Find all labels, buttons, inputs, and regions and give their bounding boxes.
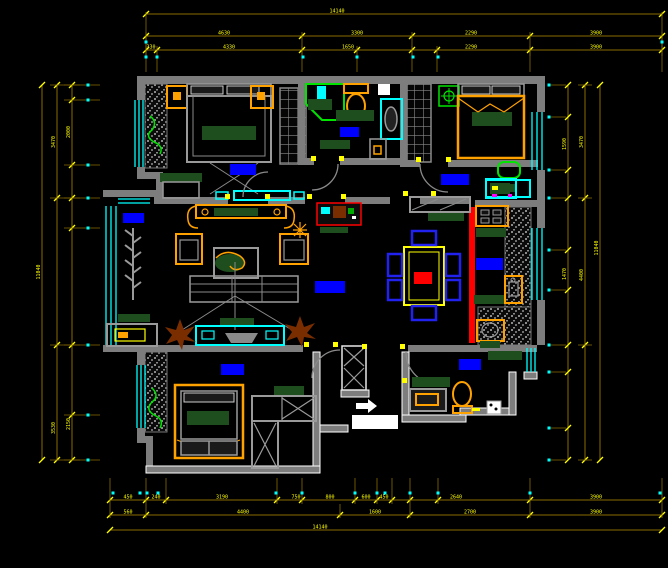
dining-table-center: [414, 272, 432, 284]
axis-dot: [87, 414, 90, 417]
drawing-layer: 1414046303300229039003304330165022903900…: [36, 9, 665, 534]
nightstand-lamp: [257, 92, 265, 100]
door-hinge: [265, 194, 270, 199]
sideboard-green: [428, 213, 464, 221]
wall: [146, 466, 320, 473]
bed2-pillow: [492, 86, 520, 94]
axis-dot: [302, 56, 305, 59]
axis-dot: [548, 116, 551, 119]
dining-chair: [388, 254, 402, 276]
window-bedroom1-left: [135, 100, 143, 167]
wall: [448, 160, 538, 167]
axis-dot: [146, 492, 149, 495]
kitchen-counter: [476, 228, 506, 237]
room-label-bedroom1: [230, 164, 256, 175]
tv-console-green: [220, 318, 254, 326]
dim-top-row3-label: 1650: [342, 45, 354, 51]
cad-viewport[interactable]: 1414046303300229039003304330165022903900…: [0, 0, 668, 568]
bathroom1-counter: [336, 110, 374, 121]
armchair-left-seat: [180, 240, 198, 260]
dim-top-row3-label: 4330: [223, 45, 235, 51]
axis-dot: [437, 492, 440, 495]
shower-bench: [308, 99, 332, 110]
washing-machine: [370, 139, 386, 159]
floor-plan-svg: 1414046303300229039003304330165022903900…: [0, 0, 668, 568]
stove-burner: [481, 210, 489, 215]
dim-left-col2-label: 3530: [51, 422, 57, 434]
dresser-top-bedroom1: [160, 173, 202, 182]
room-label-bathroom2: [459, 359, 481, 370]
wall: [320, 425, 348, 432]
dim-bottom-row1-label: 750: [291, 495, 300, 501]
axis-dot: [659, 492, 662, 495]
door-hinge: [307, 194, 312, 199]
bench-bay-pad: [118, 332, 128, 338]
wall: [537, 170, 545, 228]
room-label-bathroom1: [340, 127, 359, 137]
stove-burner: [481, 218, 489, 223]
wall: [298, 84, 305, 165]
door-hinge: [416, 157, 421, 162]
wall: [103, 190, 161, 197]
floor-drain: [487, 401, 501, 414]
dim-right-col1-label: 1470: [562, 268, 568, 280]
bathroom1-door-white: [378, 84, 390, 95]
axis-dot: [409, 492, 412, 495]
rug-lines: [190, 276, 298, 302]
wall: [137, 76, 545, 84]
axis-dot: [156, 56, 159, 59]
dim-right-col2-label: 3470: [579, 136, 585, 148]
axis-dot: [301, 492, 304, 495]
tv-set: [225, 333, 258, 343]
axis-dot: [356, 56, 359, 59]
axis-dot: [87, 164, 90, 167]
red-partition: [469, 207, 475, 343]
bedroom3-green-strip: [274, 386, 304, 396]
dim-bottom-row2-label: 1600: [369, 510, 381, 516]
axis-dot: [384, 492, 387, 495]
wall: [537, 84, 545, 112]
dim-top-row3-label: 3900: [590, 45, 602, 51]
dining-chair: [412, 231, 436, 245]
door-hinge: [402, 378, 407, 383]
door-hinge: [446, 157, 451, 162]
wall: [137, 428, 145, 436]
bed2-pillow: [462, 86, 490, 94]
dim-left-col1-label: 11040: [36, 264, 42, 279]
sofa-knot: [274, 209, 280, 215]
dim-bottom-row1-label: 2640: [450, 495, 462, 501]
living-label-shelf: [118, 314, 150, 322]
wall: [402, 415, 466, 422]
door-hinge: [403, 191, 408, 196]
toilet2-mark: [472, 408, 480, 411]
ceiling-fan-cross: [441, 88, 457, 104]
nightstand-lamp: [173, 92, 181, 100]
console-green: [320, 227, 348, 233]
wall: [524, 372, 537, 379]
dim-right-col3-label: 11040: [594, 240, 600, 255]
dim-bottom-row1-label: 600: [361, 495, 370, 501]
bed3-pillow: [184, 393, 234, 402]
dim-top-row2-label: 4630: [218, 31, 230, 37]
room-label-bedroom2: [441, 174, 469, 185]
axis-dot: [548, 249, 551, 252]
dim-top-row3-label: 2290: [465, 45, 477, 51]
dim-bottom-row2-label: 3900: [590, 510, 602, 516]
dim-bottom-row2-label: 560: [123, 510, 132, 516]
door-hinge: [339, 156, 344, 161]
fridge-mark: [492, 186, 498, 190]
wall: [341, 390, 369, 397]
floor-drain-dot: [495, 408, 498, 411]
axis-dot: [548, 289, 551, 292]
axis-dot: [87, 197, 90, 200]
rug: [190, 276, 298, 302]
dim-top-row1-label: 14140: [329, 9, 344, 15]
dim-bottom-row1-label: 3900: [590, 495, 602, 501]
axis-dot: [87, 459, 90, 462]
toilet2-bowl: [453, 382, 471, 406]
kitchen-green-strip: [480, 341, 500, 348]
dim-bottom-row1-label: 800: [325, 495, 334, 501]
bed1-pillow: [227, 86, 259, 94]
branch-decor: [125, 228, 141, 300]
axis-dot: [548, 371, 551, 374]
dim-bottom-row2-label: 4400: [237, 510, 249, 516]
wall: [146, 436, 153, 466]
dim-top-row2-label: 2290: [465, 31, 477, 37]
dim-top-row3-label: 330: [146, 45, 155, 51]
dim-left-col2-label: 3470: [51, 136, 57, 148]
wall: [408, 345, 537, 352]
dim-top-row2-label: 3900: [590, 31, 602, 37]
axis-dot: [548, 84, 551, 87]
toilet1-tank: [344, 84, 368, 93]
window-bay-top: [118, 199, 150, 203]
potted-plant: [285, 316, 316, 347]
sofa-knot: [202, 209, 208, 215]
axis-dot: [354, 492, 357, 495]
wall: [137, 84, 145, 100]
axis-dot: [87, 344, 90, 347]
wall: [537, 300, 545, 345]
stove-burner: [493, 218, 501, 223]
bathroom1-counter2: [320, 140, 350, 149]
bed1-pillow: [191, 86, 223, 94]
axis-dot: [412, 56, 415, 59]
wall: [137, 352, 145, 365]
floor-lamp: [293, 222, 307, 238]
axis-dot: [112, 492, 115, 495]
art-panel-brown: [333, 206, 346, 218]
door-hinge: [431, 191, 436, 196]
stove-burner: [493, 210, 501, 215]
door-arc-bedroom1: [243, 172, 268, 197]
axis-dot: [87, 84, 90, 87]
dim-left-col3-label: 2000: [66, 126, 72, 138]
bed2-blanket: [472, 112, 512, 126]
door-arc-bathroom1: [312, 164, 338, 190]
dim-bottom-row1-label: 450: [379, 495, 388, 501]
axis-dot: [145, 56, 148, 59]
armchair-right-seat: [284, 240, 304, 260]
axis-dot: [376, 492, 379, 495]
hatch-bedroom1-left: [145, 84, 167, 168]
axis-dot: [548, 169, 551, 172]
door-hinge: [311, 156, 316, 161]
axis-dot: [548, 427, 551, 430]
bed3-blanket: [187, 411, 229, 425]
dining-chair: [388, 280, 402, 300]
wardrobe3-x1: [282, 396, 314, 421]
axis-dot: [87, 227, 90, 230]
axis-dot: [661, 41, 664, 44]
dining-chair: [446, 254, 460, 276]
wardrobe3-x2: [254, 423, 276, 466]
washbasin1-bowl: [385, 107, 397, 131]
tv-cabinet-box: [266, 331, 278, 339]
washing-machine-knob: [374, 146, 381, 154]
wardrobe-bedroom2: [407, 84, 431, 162]
dim-right-col1-label: 1590: [562, 138, 568, 150]
dresser-bedroom1: [163, 182, 199, 198]
magenta-dot: [508, 194, 512, 197]
dim-bottom-row1-label: 3190: [216, 495, 228, 501]
dim-top-row2-label: 3300: [351, 31, 363, 37]
axis-dot: [437, 56, 440, 59]
dim-bottom-row2-label: 2700: [464, 510, 476, 516]
room-label-kitchen: [476, 258, 503, 270]
axis-dot: [548, 459, 551, 462]
window-kitchen-right: [532, 228, 542, 300]
bathroom2-counter: [412, 377, 450, 387]
shoe-cabinet-x: [344, 348, 364, 388]
art-panel-green: [348, 208, 354, 214]
door-hinge: [400, 344, 405, 349]
axis-dot: [275, 492, 278, 495]
dim-left-col3-label: 2150: [66, 418, 72, 430]
wall: [509, 372, 516, 415]
dim-bottom-row3-label: 14140: [312, 525, 327, 531]
door-hinge: [304, 342, 309, 347]
axis-dot: [548, 344, 551, 347]
window-bedroom3-left: [137, 365, 145, 428]
door-hinge: [225, 194, 230, 199]
room-label-living: [315, 281, 345, 293]
dim-right-col2-label: 4400: [579, 269, 585, 281]
wall: [137, 172, 163, 179]
bed2-fold: [458, 98, 524, 112]
sofa-cushion: [214, 208, 258, 216]
room-label-balcony: [123, 213, 144, 223]
bathroom2-counter-top: [488, 351, 522, 360]
shoe-cabinet: [342, 346, 366, 390]
art-panel-cyan: [321, 207, 330, 214]
door-hinge: [341, 194, 346, 199]
dining-chair: [412, 306, 436, 320]
kitchen-counter: [474, 295, 504, 304]
axis-dot: [548, 197, 551, 200]
room-label-bedroom3: [221, 364, 244, 375]
bed1-blanket: [202, 126, 256, 140]
art-panel-white: [352, 216, 356, 219]
axis-dot: [145, 41, 148, 44]
entry-marker: [352, 415, 398, 429]
hatch-bedroom3-left: [145, 352, 167, 432]
axis-dot: [157, 492, 160, 495]
shower-head: [317, 86, 326, 101]
axis-dot: [529, 492, 532, 495]
tv-cabinet-box: [202, 331, 214, 339]
entry-arrow: [356, 399, 377, 413]
dining-chair: [446, 280, 460, 300]
axis-dot: [139, 492, 142, 495]
door-hinge: [333, 342, 338, 347]
dim-bottom-row1-label: 450: [123, 495, 132, 501]
floor-drain-dot: [490, 404, 493, 407]
door-hinge: [362, 344, 367, 349]
dim-bottom-row1-label: 240: [151, 495, 160, 501]
axis-dot: [87, 99, 90, 102]
